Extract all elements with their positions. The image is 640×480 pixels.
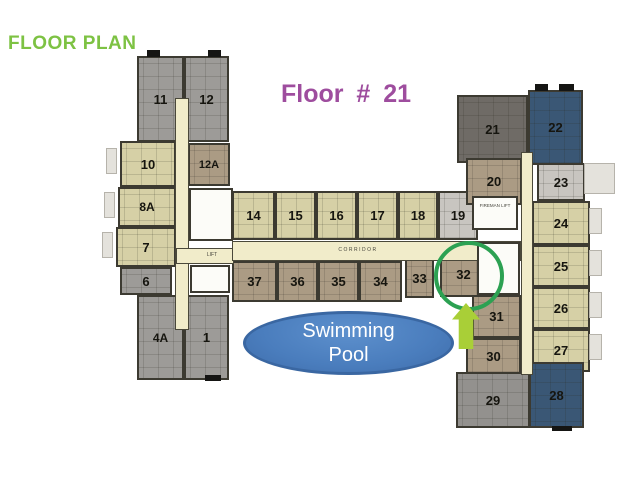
unit-10: 10 xyxy=(120,141,176,187)
balcony-block xyxy=(589,250,602,276)
balcony-block xyxy=(589,334,602,360)
unit-37: 37 xyxy=(232,261,277,302)
roof-tab xyxy=(535,84,548,91)
balcony-block xyxy=(584,163,615,194)
unit-18: 18 xyxy=(398,191,438,240)
balcony-block xyxy=(589,292,602,318)
unit-7: 7 xyxy=(116,227,176,267)
unit-12A: 12A xyxy=(188,143,230,186)
unit-1: 1 xyxy=(184,295,229,380)
unit-17: 17 xyxy=(357,191,398,240)
unit-8A: 8A xyxy=(118,187,176,227)
roof-tab xyxy=(147,50,160,57)
service-block xyxy=(189,188,233,241)
pool-label-line2: Pool xyxy=(328,343,368,367)
unit-22: 22 xyxy=(528,90,583,165)
unit-30: 30 xyxy=(466,338,521,375)
balcony-block xyxy=(589,208,602,234)
balcony-block xyxy=(106,148,117,174)
swimming-pool: Swimming Pool xyxy=(243,311,454,375)
unit-15: 15 xyxy=(275,191,316,240)
floor-plan-canvas: 11121012A8A764A1141516171819373635343332… xyxy=(0,0,640,480)
roof-tab xyxy=(559,84,574,91)
pool-label-line1: Swimming xyxy=(302,319,394,343)
plan-label-fireman-lift: FIREMAN LIFT xyxy=(474,203,516,209)
service-block xyxy=(190,265,230,293)
plan-label-corridor: CORRIDOR xyxy=(322,247,394,253)
unit-28: 28 xyxy=(529,362,584,428)
unit-29: 29 xyxy=(456,372,530,428)
unit-23: 23 xyxy=(537,163,585,201)
unit-14: 14 xyxy=(232,191,275,240)
unit-34: 34 xyxy=(359,261,402,302)
unit-36: 36 xyxy=(277,261,318,302)
balcony-block xyxy=(104,192,115,218)
corridor-strip xyxy=(521,152,533,375)
unit-32-highlight-circle xyxy=(434,241,504,311)
unit-16: 16 xyxy=(316,191,357,240)
unit-24: 24 xyxy=(532,201,590,245)
roof-tab xyxy=(205,375,221,381)
balcony-block xyxy=(102,232,113,258)
unit-26: 26 xyxy=(532,287,590,329)
unit-6: 6 xyxy=(120,267,172,295)
plan-label-lift: LIFT xyxy=(190,252,234,258)
unit-25: 25 xyxy=(532,245,590,287)
unit-12: 12 xyxy=(184,56,229,142)
roof-tab xyxy=(208,50,221,57)
corridor-strip xyxy=(175,98,189,330)
unit-21: 21 xyxy=(457,95,528,163)
floor-plan-title: FLOOR PLAN xyxy=(8,33,137,55)
unit-33: 33 xyxy=(405,259,434,298)
floor-number-label: Floor # 21 xyxy=(281,80,411,109)
unit-35: 35 xyxy=(318,261,359,302)
service-block xyxy=(472,196,518,230)
roof-tab xyxy=(552,426,572,431)
